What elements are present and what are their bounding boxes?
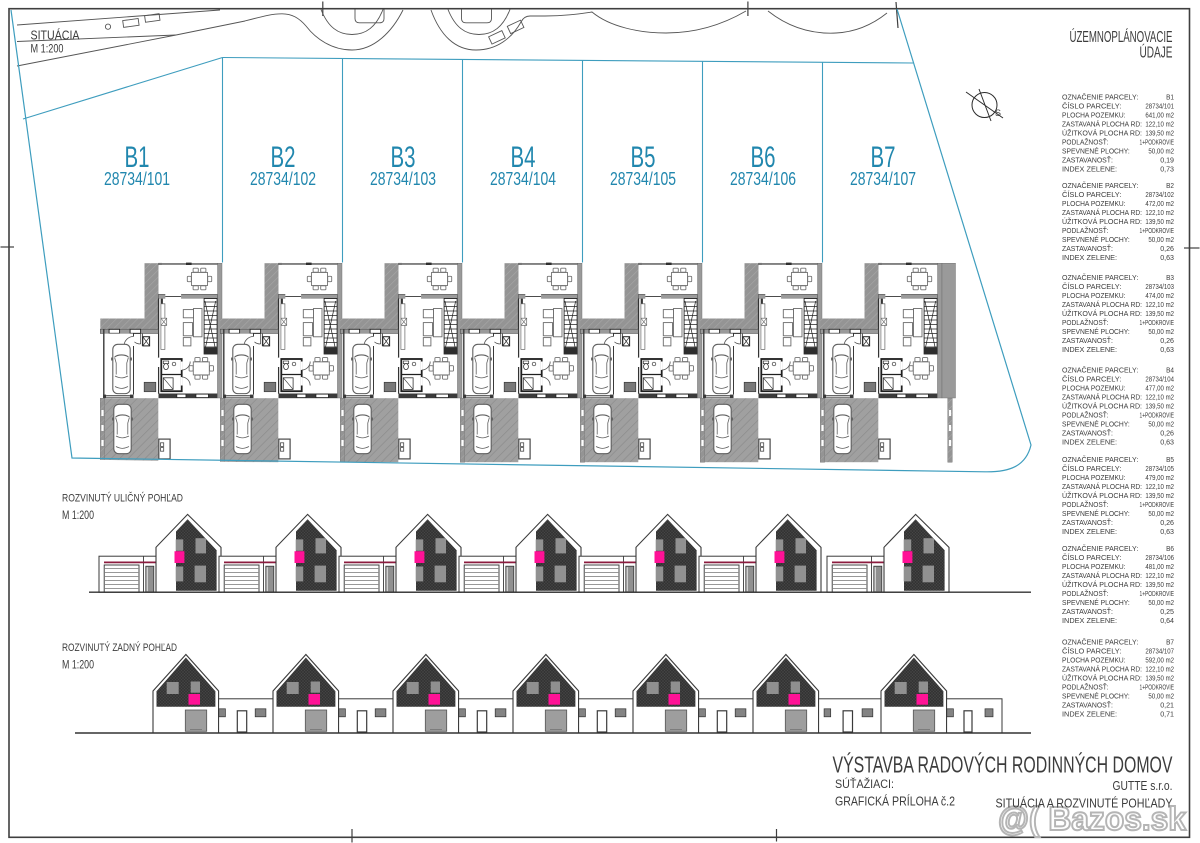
svg-text:INDEX ZELENE:: INDEX ZELENE: — [1062, 165, 1117, 174]
svg-text:SPEVNENÉ PLOCHY:: SPEVNENÉ PLOCHY: — [1062, 235, 1130, 244]
svg-text:ZASTAVANOSŤ:: ZASTAVANOSŤ: — [1062, 429, 1113, 438]
svg-text:ČÍSLO PARCELY:: ČÍSLO PARCELY: — [1062, 190, 1121, 199]
svg-text:28734/106: 28734/106 — [1145, 553, 1174, 562]
svg-text:ÚDAJE: ÚDAJE — [1140, 45, 1173, 62]
svg-text:ÚŽITKOVÁ PLOCHA RD:: ÚŽITKOVÁ PLOCHA RD: — [1062, 309, 1142, 318]
svg-text:PLOCHA POZEMKU:: PLOCHA POZEMKU: — [1062, 291, 1126, 300]
svg-text:ZASTAVANOSŤ:: ZASTAVANOSŤ: — [1062, 701, 1113, 710]
svg-text:B3: B3 — [1166, 273, 1174, 282]
svg-text:PLOCHA POZEMKU:: PLOCHA POZEMKU: — [1062, 473, 1126, 482]
svg-text:OZNAČENIE PARCELY:: OZNAČENIE PARCELY: — [1062, 181, 1138, 190]
svg-text:ZASTAVANOSŤ:: ZASTAVANOSŤ: — [1062, 336, 1113, 345]
svg-text:PLOCHA POZEMKU:: PLOCHA POZEMKU: — [1062, 562, 1126, 571]
svg-text:ÚŽITKOVÁ PLOCHA RD:: ÚŽITKOVÁ PLOCHA RD: — [1062, 580, 1142, 589]
svg-text:0,71: 0,71 — [1160, 710, 1174, 719]
svg-text:139,50 m2: 139,50 m2 — [1145, 674, 1174, 683]
svg-text:B4: B4 — [1166, 366, 1175, 375]
svg-text:GUTTE s.r.o.: GUTTE s.r.o. — [1113, 779, 1173, 793]
svg-text:ZASTAVANOSŤ:: ZASTAVANOSŤ: — [1062, 518, 1113, 527]
svg-text:139,50 m2: 139,50 m2 — [1145, 309, 1174, 318]
svg-text:OZNAČENIE PARCELY:: OZNAČENIE PARCELY: — [1062, 93, 1138, 102]
svg-text:50,00 m2: 50,00 m2 — [1148, 692, 1174, 701]
svg-text:1+PODKROVIE: 1+PODKROVIE — [1140, 683, 1175, 692]
svg-text:SITUÁCIA: SITUÁCIA — [31, 28, 80, 43]
svg-text:INDEX ZELENE:: INDEX ZELENE: — [1062, 438, 1117, 447]
svg-text:ČÍSLO PARCELY:: ČÍSLO PARCELY: — [1062, 375, 1121, 384]
svg-text:641,00 m2: 641,00 m2 — [1145, 111, 1174, 120]
svg-text:S: S — [995, 108, 1001, 118]
svg-text:474,00 m2: 474,00 m2 — [1145, 291, 1174, 300]
svg-text:1+PODKROVIE: 1+PODKROVIE — [1140, 318, 1175, 327]
svg-text:SÚŤAŽIACI:: SÚŤAŽIACI: — [835, 776, 894, 791]
svg-text:139,50 m2: 139,50 m2 — [1145, 217, 1174, 226]
svg-text:PODLAŽNOSŤ:: PODLAŽNOSŤ: — [1062, 138, 1109, 147]
svg-text:0,73: 0,73 — [1160, 165, 1174, 174]
svg-text:INDEX ZELENE:: INDEX ZELENE: — [1062, 345, 1117, 354]
svg-text:ZASTAVANÁ PLOCHA RD:: ZASTAVANÁ PLOCHA RD: — [1062, 482, 1142, 491]
svg-text:50,00 m2: 50,00 m2 — [1148, 598, 1174, 607]
svg-text:0,63: 0,63 — [1160, 345, 1174, 354]
svg-text:SPEVNENÉ PLOCHY:: SPEVNENÉ PLOCHY: — [1062, 420, 1130, 429]
svg-text:SPEVNENÉ PLOCHY:: SPEVNENÉ PLOCHY: — [1062, 327, 1130, 336]
svg-text:PLOCHA POZEMKU:: PLOCHA POZEMKU: — [1062, 111, 1126, 120]
svg-text:50,00 m2: 50,00 m2 — [1148, 147, 1174, 156]
svg-text:ÚZEMNOPLÁNOVACIE: ÚZEMNOPLÁNOVACIE — [1070, 29, 1173, 46]
svg-text:0,26: 0,26 — [1160, 518, 1174, 527]
svg-text:28734/102: 28734/102 — [1145, 190, 1174, 199]
svg-text:ROZVINUTÝ ULIČNÝ POHĽAD: ROZVINUTÝ ULIČNÝ POHĽAD — [62, 492, 183, 505]
svg-text:ČÍSLO PARCELY:: ČÍSLO PARCELY: — [1062, 647, 1121, 656]
svg-text:ČÍSLO PARCELY:: ČÍSLO PARCELY: — [1062, 464, 1121, 473]
svg-text:592,00 m2: 592,00 m2 — [1145, 656, 1174, 665]
svg-text:1+PODKROVIE: 1+PODKROVIE — [1140, 226, 1175, 235]
svg-text:1+PODKROVIE: 1+PODKROVIE — [1140, 411, 1175, 420]
svg-text:ÚŽITKOVÁ PLOCHA RD:: ÚŽITKOVÁ PLOCHA RD: — [1062, 491, 1142, 500]
svg-text:B2: B2 — [1166, 181, 1174, 190]
svg-text:28734/102: 28734/102 — [250, 169, 316, 189]
svg-text:139,50 m2: 139,50 m2 — [1145, 491, 1174, 500]
svg-text:OZNAČENIE PARCELY:: OZNAČENIE PARCELY: — [1062, 455, 1138, 464]
svg-text:50,00 m2: 50,00 m2 — [1148, 420, 1174, 429]
svg-text:28734/103: 28734/103 — [1145, 282, 1174, 291]
svg-text:28734/107: 28734/107 — [1145, 647, 1174, 656]
svg-text:OZNAČENIE PARCELY:: OZNAČENIE PARCELY: — [1062, 273, 1138, 282]
svg-text:0,25: 0,25 — [1160, 607, 1174, 616]
svg-text:PLOCHA POZEMKU:: PLOCHA POZEMKU: — [1062, 199, 1126, 208]
svg-text:ZASTAVANÁ PLOCHA RD:: ZASTAVANÁ PLOCHA RD: — [1062, 120, 1142, 129]
svg-text:OZNAČENIE PARCELY:: OZNAČENIE PARCELY: — [1062, 366, 1138, 375]
svg-text:B7: B7 — [1166, 638, 1174, 647]
svg-text:28734/105: 28734/105 — [1145, 464, 1174, 473]
svg-text:PLOCHA POZEMKU:: PLOCHA POZEMKU: — [1062, 656, 1126, 665]
svg-text:28734/107: 28734/107 — [850, 169, 916, 189]
svg-text:479,00 m2: 479,00 m2 — [1145, 473, 1174, 482]
svg-text:28734/101: 28734/101 — [1145, 102, 1174, 111]
svg-text:VÝSTAVBA RADOVÝCH RODINNÝCH DO: VÝSTAVBA RADOVÝCH RODINNÝCH DOMOV — [833, 752, 1173, 778]
svg-text:1+PODKROVIE: 1+PODKROVIE — [1140, 138, 1175, 147]
svg-text:50,00 m2: 50,00 m2 — [1148, 235, 1174, 244]
svg-text:0,26: 0,26 — [1160, 429, 1174, 438]
svg-text:28734/106: 28734/106 — [730, 169, 796, 189]
svg-text:50,00 m2: 50,00 m2 — [1148, 327, 1174, 336]
svg-text:PODLAŽNOSŤ:: PODLAŽNOSŤ: — [1062, 589, 1109, 598]
svg-text:122,10 m2: 122,10 m2 — [1145, 393, 1174, 402]
svg-text:SPEVNENÉ PLOCHY:: SPEVNENÉ PLOCHY: — [1062, 598, 1130, 607]
svg-text:139,50 m2: 139,50 m2 — [1145, 580, 1174, 589]
svg-text:28734/101: 28734/101 — [104, 169, 170, 189]
svg-text:0,26: 0,26 — [1160, 336, 1174, 345]
svg-text:INDEX ZELENE:: INDEX ZELENE: — [1062, 616, 1117, 625]
svg-text:ZASTAVANÁ PLOCHA RD:: ZASTAVANÁ PLOCHA RD: — [1062, 665, 1142, 674]
svg-text:50,00 m2: 50,00 m2 — [1148, 509, 1174, 518]
svg-text:ČÍSLO PARCELY:: ČÍSLO PARCELY: — [1062, 102, 1121, 111]
svg-text:SPEVNENÉ PLOCHY:: SPEVNENÉ PLOCHY: — [1062, 509, 1130, 518]
svg-text:ROZVINUTÝ ZADNÝ POHĽAD: ROZVINUTÝ ZADNÝ POHĽAD — [62, 641, 177, 654]
svg-text:0,64: 0,64 — [1160, 616, 1174, 625]
svg-text:139,50 m2: 139,50 m2 — [1145, 402, 1174, 411]
svg-text:GRAFICKÁ PRÍLOHA č.2: GRAFICKÁ PRÍLOHA č.2 — [835, 794, 955, 809]
svg-text:122,10 m2: 122,10 m2 — [1145, 482, 1174, 491]
svg-text:PODLAŽNOSŤ:: PODLAŽNOSŤ: — [1062, 683, 1109, 692]
svg-text:0,19: 0,19 — [1160, 156, 1174, 165]
svg-text:0,26: 0,26 — [1160, 244, 1174, 253]
svg-text:ZASTAVANÁ PLOCHA RD:: ZASTAVANÁ PLOCHA RD: — [1062, 393, 1142, 402]
svg-text:ČÍSLO PARCELY:: ČÍSLO PARCELY: — [1062, 553, 1121, 562]
svg-text:SITUÁCIA A ROZVINUTÉ POHĽADY: SITUÁCIA A ROZVINUTÉ POHĽADY — [996, 796, 1174, 811]
svg-text:0,63: 0,63 — [1160, 438, 1174, 447]
svg-text:122,10 m2: 122,10 m2 — [1145, 208, 1174, 217]
svg-text:PODLAŽNOSŤ:: PODLAŽNOSŤ: — [1062, 318, 1109, 327]
svg-text:1+PODKROVIE: 1+PODKROVIE — [1140, 589, 1175, 598]
svg-text:122,10 m2: 122,10 m2 — [1145, 300, 1174, 309]
svg-text:M 1:200: M 1:200 — [62, 658, 94, 672]
svg-text:ZASTAVANÁ PLOCHA RD:: ZASTAVANÁ PLOCHA RD: — [1062, 300, 1142, 309]
svg-text:122,10 m2: 122,10 m2 — [1145, 120, 1174, 129]
svg-text:OZNAČENIE PARCELY:: OZNAČENIE PARCELY: — [1062, 544, 1138, 553]
svg-text:1+PODKROVIE: 1+PODKROVIE — [1140, 500, 1175, 509]
svg-text:28734/103: 28734/103 — [370, 169, 436, 189]
svg-text:PODLAŽNOSŤ:: PODLAŽNOSŤ: — [1062, 500, 1109, 509]
svg-text:ZASTAVANOSŤ:: ZASTAVANOSŤ: — [1062, 156, 1113, 165]
svg-text:M 1:200: M 1:200 — [62, 508, 94, 522]
svg-text:ZASTAVANOSŤ:: ZASTAVANOSŤ: — [1062, 244, 1113, 253]
svg-text:ÚŽITKOVÁ PLOCHA RD:: ÚŽITKOVÁ PLOCHA RD: — [1062, 129, 1142, 138]
svg-text:ČÍSLO PARCELY:: ČÍSLO PARCELY: — [1062, 282, 1121, 291]
svg-text:INDEX ZELENE:: INDEX ZELENE: — [1062, 710, 1117, 719]
svg-text:28734/104: 28734/104 — [490, 169, 556, 189]
svg-text:0,63: 0,63 — [1160, 527, 1174, 536]
svg-text:SPEVNENÉ PLOCHY:: SPEVNENÉ PLOCHY: — [1062, 692, 1130, 701]
svg-text:B1: B1 — [1166, 93, 1174, 102]
svg-text:122,10 m2: 122,10 m2 — [1145, 571, 1174, 580]
svg-text:INDEX ZELENE:: INDEX ZELENE: — [1062, 253, 1117, 262]
svg-text:INDEX ZELENE:: INDEX ZELENE: — [1062, 527, 1117, 536]
svg-text:ZASTAVANÁ PLOCHA RD:: ZASTAVANÁ PLOCHA RD: — [1062, 208, 1142, 217]
svg-text:ÚŽITKOVÁ PLOCHA RD:: ÚŽITKOVÁ PLOCHA RD: — [1062, 674, 1142, 683]
svg-text:SPEVNENÉ PLOCHY:: SPEVNENÉ PLOCHY: — [1062, 147, 1130, 156]
svg-text:B6: B6 — [1166, 544, 1174, 553]
svg-text:ZASTAVANÁ PLOCHA RD:: ZASTAVANÁ PLOCHA RD: — [1062, 571, 1142, 580]
svg-text:M 1:200: M 1:200 — [31, 42, 64, 56]
svg-text:28734/104: 28734/104 — [1145, 375, 1174, 384]
svg-text:481,00 m2: 481,00 m2 — [1145, 562, 1174, 571]
svg-text:477,00 m2: 477,00 m2 — [1145, 384, 1174, 393]
svg-text:PODLAŽNOSŤ:: PODLAŽNOSŤ: — [1062, 411, 1109, 420]
svg-text:ÚŽITKOVÁ PLOCHA RD:: ÚŽITKOVÁ PLOCHA RD: — [1062, 217, 1142, 226]
svg-text:PLOCHA POZEMKU:: PLOCHA POZEMKU: — [1062, 384, 1126, 393]
svg-text:B5: B5 — [1166, 455, 1174, 464]
svg-text:ZASTAVANOSŤ:: ZASTAVANOSŤ: — [1062, 607, 1113, 616]
svg-text:122,10 m2: 122,10 m2 — [1145, 665, 1174, 674]
svg-text:28734/105: 28734/105 — [610, 169, 676, 189]
svg-text:472,00 m2: 472,00 m2 — [1145, 199, 1174, 208]
svg-text:PODLAŽNOSŤ:: PODLAŽNOSŤ: — [1062, 226, 1109, 235]
svg-text:OZNAČENIE PARCELY:: OZNAČENIE PARCELY: — [1062, 638, 1138, 647]
svg-text:0,63: 0,63 — [1160, 253, 1174, 262]
svg-text:139,50 m2: 139,50 m2 — [1145, 129, 1174, 138]
svg-text:ÚŽITKOVÁ PLOCHA RD:: ÚŽITKOVÁ PLOCHA RD: — [1062, 402, 1142, 411]
svg-text:0,21: 0,21 — [1160, 701, 1174, 710]
